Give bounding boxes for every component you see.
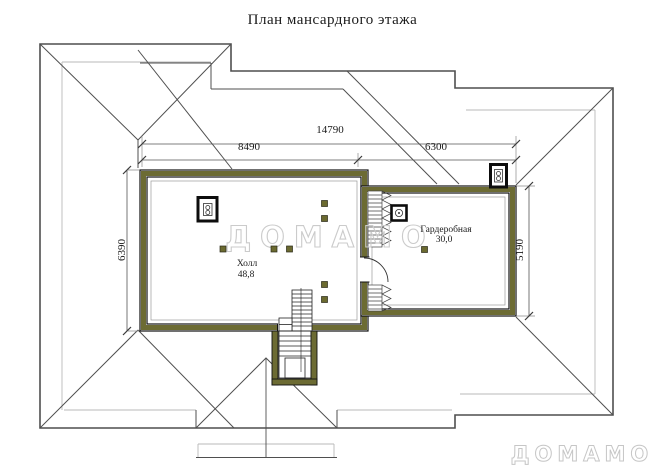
room-hall-name: Холл xyxy=(207,260,287,270)
dim-wardrobe-width: 6300 xyxy=(406,142,466,154)
dim-wardrobe-depth: 5190 xyxy=(515,220,527,280)
chimney-vent-icon-hall xyxy=(198,198,217,222)
page-title: План мансардного этажа xyxy=(0,13,665,29)
room-wardrobe-area: 30,0 xyxy=(394,236,494,246)
watermark-corner-text: ДОМАМО xyxy=(511,442,653,466)
floor-plan-drawing: ДОМАМО xyxy=(0,0,665,470)
dim-hall-width: 8490 xyxy=(219,142,279,154)
dim-overall-width: 14790 xyxy=(300,125,360,137)
chimney-vent-icon-wardrobe xyxy=(392,206,407,221)
dim-hall-depth: 6390 xyxy=(117,220,129,280)
room-hall-area: 48,8 xyxy=(206,271,286,281)
chimney-vent-icon-roof xyxy=(491,165,507,188)
floor-plan-page: ДОМАМО xyxy=(0,0,665,470)
